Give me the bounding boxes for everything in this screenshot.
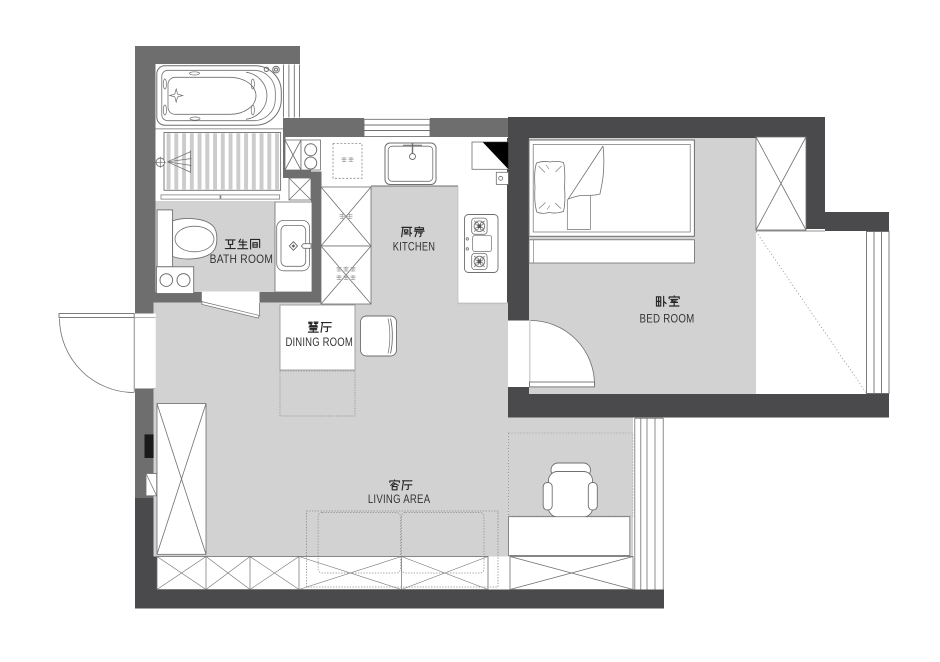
svg-text:LIVING AREA: LIVING AREA xyxy=(368,493,431,506)
svg-text:DINING ROOM: DINING ROOM xyxy=(285,336,353,349)
svg-text:BATH ROOM: BATH ROOM xyxy=(210,253,274,266)
svg-text:KITCHEN: KITCHEN xyxy=(393,241,436,254)
svg-text:BED ROOM: BED ROOM xyxy=(640,312,695,325)
